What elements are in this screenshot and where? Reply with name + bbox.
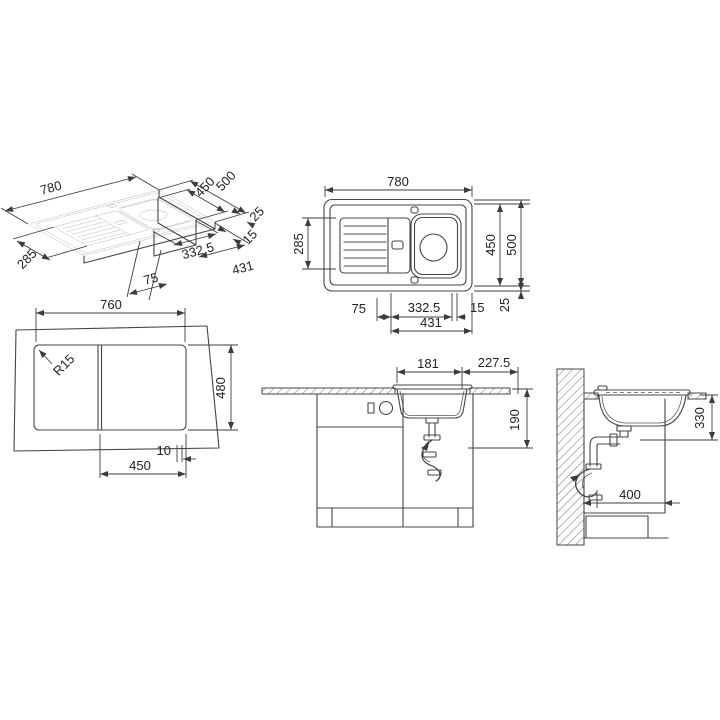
front-dim-181: 181 <box>417 356 439 371</box>
front-dim-190: 190 <box>507 409 522 431</box>
plan-dim-332: 332.5 <box>408 300 441 315</box>
plan-dim-15: 15 <box>470 300 484 315</box>
plan-dim-75: 75 <box>352 301 366 316</box>
cutout-dim-480: 480 <box>213 377 228 399</box>
side-dim-330: 330 <box>692 407 707 429</box>
plan-dim-285: 285 <box>291 233 306 255</box>
plan-dim-500: 500 <box>504 234 519 256</box>
side-wall <box>557 369 584 545</box>
side-countertop-left <box>584 393 598 399</box>
cutout-dim-450: 450 <box>129 458 151 473</box>
front-countertop-left <box>262 388 395 394</box>
cutout-dim-760: 760 <box>100 297 122 312</box>
plan-dim-25: 25 <box>497 298 512 312</box>
technical-drawing-sheet: 780 500 450 25 15 285 332,5 <box>0 0 720 720</box>
plan-dim-431: 431 <box>420 315 442 330</box>
front-dim-2275: 227.5 <box>478 355 511 370</box>
sheet-background <box>0 0 720 720</box>
sink-technical-drawing: 780 500 450 25 15 285 332,5 <box>0 0 720 720</box>
side-dim-400: 400 <box>619 487 641 502</box>
side-countertop-right <box>688 393 706 399</box>
cutout-dim-10: 10 <box>157 443 171 458</box>
front-countertop-right <box>470 388 510 394</box>
plan-dim-450: 450 <box>483 234 498 256</box>
plan-dim-780: 780 <box>387 174 409 189</box>
